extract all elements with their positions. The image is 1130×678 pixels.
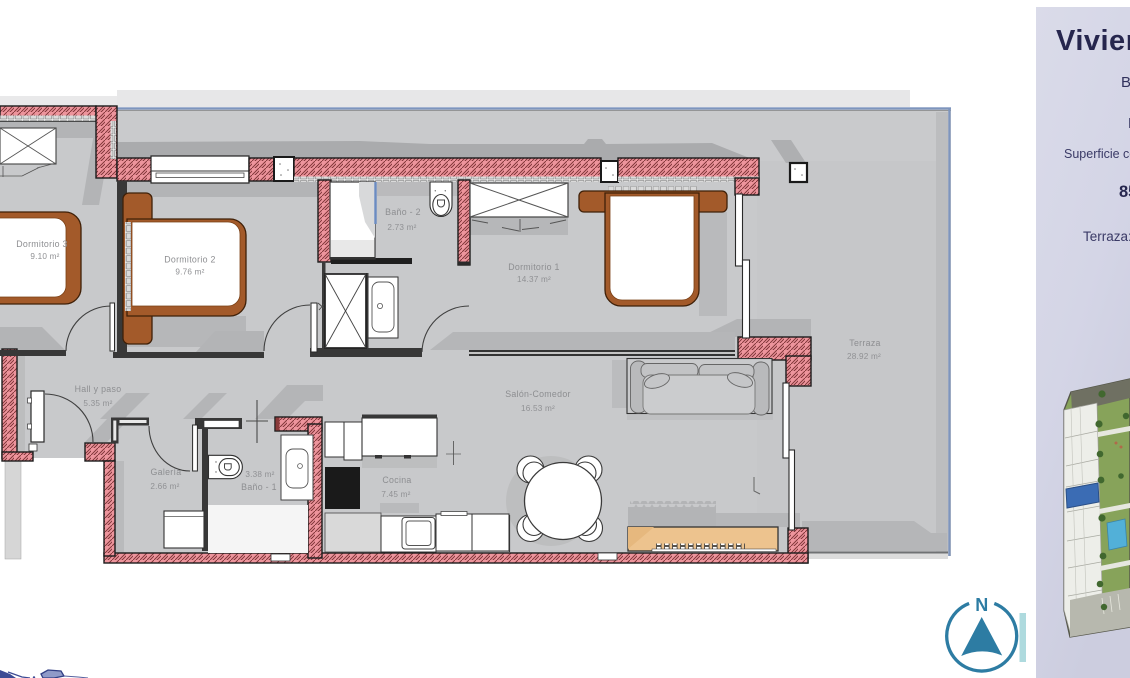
svg-text:Hall y paso: Hall y paso: [75, 384, 122, 394]
svg-text:14.37 m²: 14.37 m²: [517, 275, 551, 284]
svg-text:Salón-Comedor: Salón-Comedor: [505, 389, 571, 399]
svg-text:Terraza: Terraza: [849, 338, 880, 348]
svg-text:Superficie co: Superficie co: [1064, 147, 1130, 161]
svg-text:3.38 m²: 3.38 m²: [245, 470, 274, 479]
svg-text:Cocina: Cocina: [382, 475, 411, 485]
svg-text:85: 85: [1119, 183, 1130, 201]
svg-text:Dormitorio 3: Dormitorio 3: [16, 239, 68, 249]
svg-text:7.45 m²: 7.45 m²: [381, 490, 410, 499]
svg-text:Dormitorio 1: Dormitorio 1: [508, 262, 560, 272]
svg-text:2.66 m²: 2.66 m²: [150, 482, 179, 491]
svg-text:9.10 m²: 9.10 m²: [30, 252, 59, 261]
svg-text:Galería: Galería: [151, 467, 182, 477]
svg-text:16.53 m²: 16.53 m²: [521, 404, 555, 413]
svg-text:Terraza: 2: Terraza: 2: [1083, 229, 1130, 244]
svg-text:2.73 m²: 2.73 m²: [387, 223, 416, 232]
svg-text:Bl: Bl: [1121, 74, 1130, 91]
svg-text:Baño - 2: Baño - 2: [385, 207, 421, 217]
svg-text:28.92 m²: 28.92 m²: [847, 352, 881, 361]
svg-text:Baño - 1: Baño - 1: [241, 482, 277, 492]
svg-text:N: N: [975, 595, 988, 615]
svg-text:Dormitorio 2: Dormitorio 2: [164, 255, 216, 265]
svg-text:Vivienda: Vivienda: [1056, 25, 1130, 57]
svg-text:5.35 m²: 5.35 m²: [83, 399, 112, 408]
svg-text:9.76 m²: 9.76 m²: [175, 268, 204, 277]
